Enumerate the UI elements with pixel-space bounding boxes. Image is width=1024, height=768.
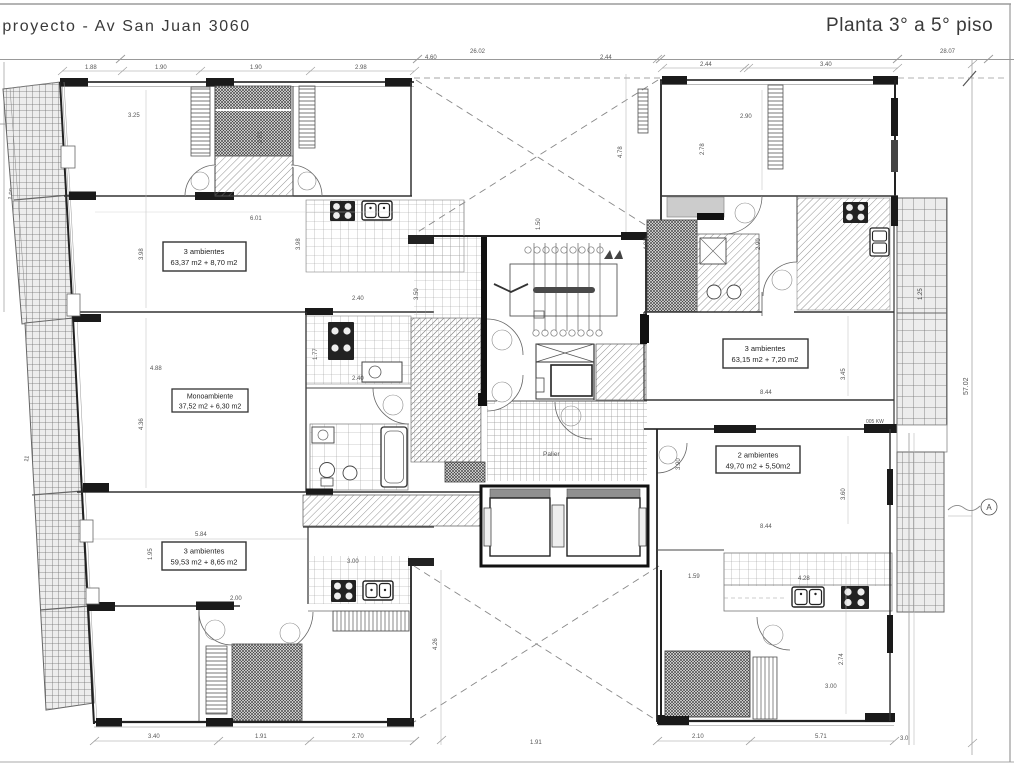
svg-text:26.02: 26.02 (470, 49, 486, 55)
svg-text:2.61: 2.61 (258, 131, 264, 143)
svg-text:3 ambientes: 3 ambientes (745, 344, 786, 353)
svg-text:4.26: 4.26 (433, 638, 439, 650)
svg-text:5.71: 5.71 (815, 734, 827, 740)
svg-text:2.70: 2.70 (352, 734, 364, 740)
svg-text:2.98: 2.98 (355, 65, 367, 71)
svg-text:3 ambientes: 3 ambientes (184, 247, 225, 256)
svg-text:005 KW: 005 KW (866, 419, 884, 425)
svg-text:3 ambientes: 3 ambientes (184, 547, 225, 556)
svg-text:Palier: Palier (543, 451, 560, 458)
svg-text:4.78: 4.78 (618, 146, 624, 158)
svg-text:3.40: 3.40 (148, 734, 160, 740)
svg-text:3.00: 3.00 (825, 684, 837, 690)
svg-text:6.01: 6.01 (250, 216, 262, 222)
svg-text:1.91: 1.91 (255, 734, 267, 740)
svg-text:5.84: 5.84 (195, 532, 207, 538)
svg-text:3.98: 3.98 (296, 238, 302, 250)
svg-text:3.98: 3.98 (139, 248, 145, 260)
svg-text:1.90: 1.90 (155, 65, 167, 71)
svg-text:4.60: 4.60 (425, 55, 437, 61)
svg-text:2 ambientes: 2 ambientes (738, 451, 779, 460)
svg-text:8.44: 8.44 (760, 524, 772, 530)
svg-text:3.50: 3.50 (414, 288, 420, 300)
svg-text:1.91: 1.91 (530, 740, 542, 746)
svg-text:Anteproyecto - Av San Juan 306: Anteproyecto - Av San Juan 3060 (0, 18, 251, 35)
svg-text:28.07: 28.07 (940, 49, 956, 55)
svg-text:1.95: 1.95 (148, 548, 154, 560)
svg-text:2.90: 2.90 (740, 114, 752, 120)
svg-text:57.02: 57.02 (963, 377, 970, 395)
svg-text:Monoambiente: Monoambiente (187, 394, 233, 401)
svg-text:59,53 m2 + 8,65 m2: 59,53 m2 + 8,65 m2 (171, 558, 238, 567)
svg-text:2.40: 2.40 (352, 376, 364, 382)
svg-text:4.28: 4.28 (798, 576, 810, 582)
svg-text:8.44: 8.44 (760, 390, 772, 396)
svg-text:4.90: 4.90 (644, 238, 650, 250)
svg-text:2.44: 2.44 (700, 62, 712, 68)
svg-text:3.40: 3.40 (820, 62, 832, 68)
svg-text:1.90: 1.90 (250, 65, 262, 71)
svg-text:1.77: 1.77 (313, 348, 319, 360)
svg-text:3.25: 3.25 (128, 113, 140, 119)
svg-text:37,52 m2 + 6,30 m2: 37,52 m2 + 6,30 m2 (179, 404, 242, 411)
svg-text:1.50: 1.50 (536, 218, 542, 230)
svg-text:Planta 3° a 5° piso: Planta 3° a 5° piso (826, 15, 993, 36)
svg-text:A: A (986, 503, 992, 512)
svg-text:1.25: 1.25 (918, 288, 924, 300)
svg-text:1.88: 1.88 (85, 65, 97, 71)
svg-text:2.40: 2.40 (352, 296, 364, 302)
svg-text:49,70 m2 + 5,50m2: 49,70 m2 + 5,50m2 (726, 462, 791, 471)
svg-text:2.10: 2.10 (692, 734, 704, 740)
svg-text:3.0: 3.0 (900, 736, 909, 742)
svg-text:2.74: 2.74 (839, 653, 845, 665)
svg-text:3.60: 3.60 (841, 488, 847, 500)
svg-text:2.44: 2.44 (600, 55, 612, 61)
svg-text:2.78: 2.78 (700, 143, 706, 155)
svg-text:1.59: 1.59 (688, 574, 700, 580)
svg-text:3.45: 3.45 (841, 368, 847, 380)
svg-text:63,15 m2 + 7,20 m2: 63,15 m2 + 7,20 m2 (732, 355, 799, 364)
svg-text:4.88: 4.88 (150, 366, 162, 372)
svg-text:63,37 m2 + 8,70 m2: 63,37 m2 + 8,70 m2 (171, 258, 238, 267)
svg-text:2.00: 2.00 (230, 596, 242, 602)
svg-text:3.90: 3.90 (676, 458, 682, 470)
svg-text:4.36: 4.36 (139, 418, 145, 430)
svg-text:11: 11 (24, 455, 31, 463)
